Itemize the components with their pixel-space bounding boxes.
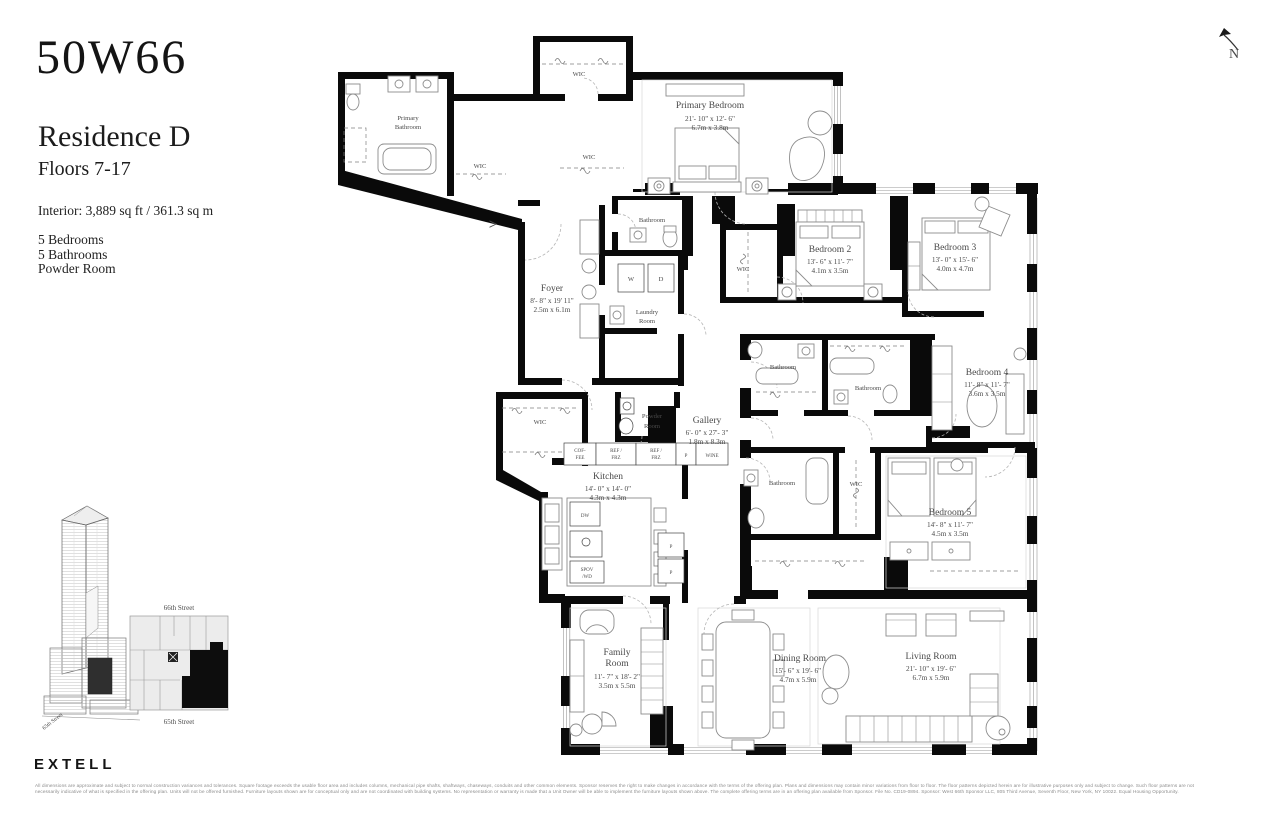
feature-bathrooms: 5 Bathrooms [38, 248, 116, 262]
label-spov: SPOV [581, 568, 594, 573]
label-wic-2: WIC [583, 154, 596, 161]
label-pantry-2: P [670, 571, 673, 576]
label-bathroom-mid1: Bathroom [770, 364, 797, 371]
label-washer: W [628, 276, 635, 283]
legal-line-2: necessarily indicative of what is specif… [35, 789, 1247, 795]
dim-bedroom2-m: 4.1m x 3.5m [812, 266, 849, 275]
street-label-bottom: 65th Street [164, 718, 195, 726]
label-laundry: Laundry [636, 309, 659, 316]
label-kitchen: Kitchen [593, 472, 623, 482]
label-pantry-1: P [670, 545, 673, 550]
label-wic-top: WIC [573, 71, 586, 78]
street-label-building: 65th Street [42, 712, 65, 732]
label-bedroom3: Bedroom 3 [934, 243, 977, 253]
label-pantry-appl: P [685, 454, 688, 459]
label-foyer: Foyer [541, 284, 564, 294]
dim-living-m: 6.7m x 5.9m [913, 673, 950, 682]
dim-foyer-ft: 8'- 8" x 19' 11" [530, 296, 574, 305]
label-dw: DW [581, 514, 590, 519]
dim-bedroom3-m: 4.0m x 4.7m [937, 264, 974, 273]
label-primary-bathroom-2: Bathroom [395, 124, 422, 131]
label-bedroom5: Bedroom 5 [929, 508, 972, 518]
locator-map: 66th Street 65th Street [130, 604, 228, 726]
feature-bedrooms: 5 Bedrooms [38, 233, 116, 247]
dim-bedroom3-ft: 13'- 0" x 15'- 6" [932, 255, 978, 264]
street-label-top: 66th Street [164, 604, 195, 612]
dim-bedroom5-ft: 14'- 8" x 11'- 7" [927, 520, 973, 529]
dim-dining-m: 4.7m x 5.9m [780, 675, 817, 684]
label-ref1: REF / [610, 449, 622, 454]
dim-bedroom4-ft: 11'- 8" x 11'- 7" [964, 380, 1010, 389]
dim-bedroom4-m: 3.6m x 3.5m [969, 389, 1006, 398]
feature-powder: Powder Room [38, 262, 116, 276]
building-brand: 50W66 [36, 30, 187, 85]
floor-plan: Primary Bathroom WIC WIC WIC Primary Bed… [330, 28, 1050, 772]
label-bathroom-foyer: Bathroom [639, 217, 666, 224]
label-coffee-2: FEE [576, 456, 585, 461]
dim-gallery-m: 1.8m x 8.3m [689, 437, 726, 446]
label-powder: Powder [642, 413, 663, 420]
label-wic-1: WIC [474, 163, 487, 170]
label-powder-2: Room [644, 423, 661, 430]
label-family-2: Room [605, 659, 629, 669]
label-gallery: Gallery [693, 416, 722, 426]
label-wic-bedroom2: WIC [737, 266, 750, 273]
label-bedroom4: Bedroom 4 [966, 368, 1009, 378]
legal-disclaimer: All dimensions are approximate and subje… [35, 783, 1247, 794]
dim-primary-bedroom-m: 6.7m x 3.8m [692, 123, 729, 132]
residence-title: Residence D [38, 120, 190, 154]
label-wic-kitchen: WIC [534, 419, 547, 426]
dim-living-ft: 21'- 10" x 19'- 6" [906, 664, 956, 673]
legal-line-1: All dimensions are approximate and subje… [35, 783, 1247, 789]
building-illustration: 65th Street [42, 506, 140, 732]
floors-subtitle: Floors 7-17 [38, 158, 131, 181]
dim-bedroom5-m: 4.5m x 3.5m [932, 529, 969, 538]
dim-family-m: 3.5m x 5.5m [599, 681, 636, 690]
label-ref2: REF / [650, 449, 662, 454]
dim-primary-bedroom-ft: 21'- 10" x 12'- 6" [685, 114, 735, 123]
label-primary-bathroom: Primary [397, 115, 419, 122]
dim-bedroom2-ft: 13'- 6" x 11'- 7" [807, 257, 853, 266]
label-bathroom-mid2: Bathroom [855, 385, 882, 392]
building-locator: 65th Street 66th Street 65th Street [40, 498, 240, 743]
label-ref2-2: FRZ [651, 456, 660, 461]
label-wine: WINE [705, 454, 718, 459]
dim-kitchen-m: 4.3m x 4.3m [590, 493, 627, 502]
north-label: N [1229, 47, 1239, 62]
label-bathroom-bed5: Bathroom [769, 480, 796, 487]
dim-foyer-m: 2.5m x 6.1m [534, 305, 571, 314]
dim-family-ft: 11'- 7" x 18'- 2" [594, 672, 640, 681]
dim-kitchen-ft: 14'- 0" x 14'- 0" [585, 484, 631, 493]
floorplan-sheet: 50W66 Residence D Floors 7-17 Interior: … [0, 0, 1280, 828]
entry-arrow: > [489, 217, 498, 233]
label-family: Family [604, 648, 631, 658]
label-living: Living Room [906, 652, 958, 662]
dim-gallery-ft: 6'- 0" x 27'- 3" [686, 428, 729, 437]
label-spov-2: /WD [582, 575, 592, 580]
label-primary-bedroom: Primary Bedroom [676, 101, 745, 111]
label-dining: Dining Room [774, 654, 827, 664]
label-ref1-2: FRZ [611, 456, 620, 461]
label-coffee: COF- [574, 449, 586, 454]
feature-list: 5 Bedrooms 5 Bathrooms Powder Room [38, 233, 116, 277]
label-wic-bed5: WIC [850, 481, 863, 488]
interior-area: Interior: 3,889 sq ft / 361.3 sq m [38, 203, 213, 219]
dim-dining-ft: 15'- 6" x 19'- 6" [775, 666, 821, 675]
north-arrow: N [1212, 26, 1254, 70]
label-bedroom2: Bedroom 2 [809, 245, 852, 255]
label-laundry-2: Room [639, 318, 656, 325]
extell-logo: EXTELL [34, 756, 116, 773]
label-dryer: D [659, 276, 664, 283]
